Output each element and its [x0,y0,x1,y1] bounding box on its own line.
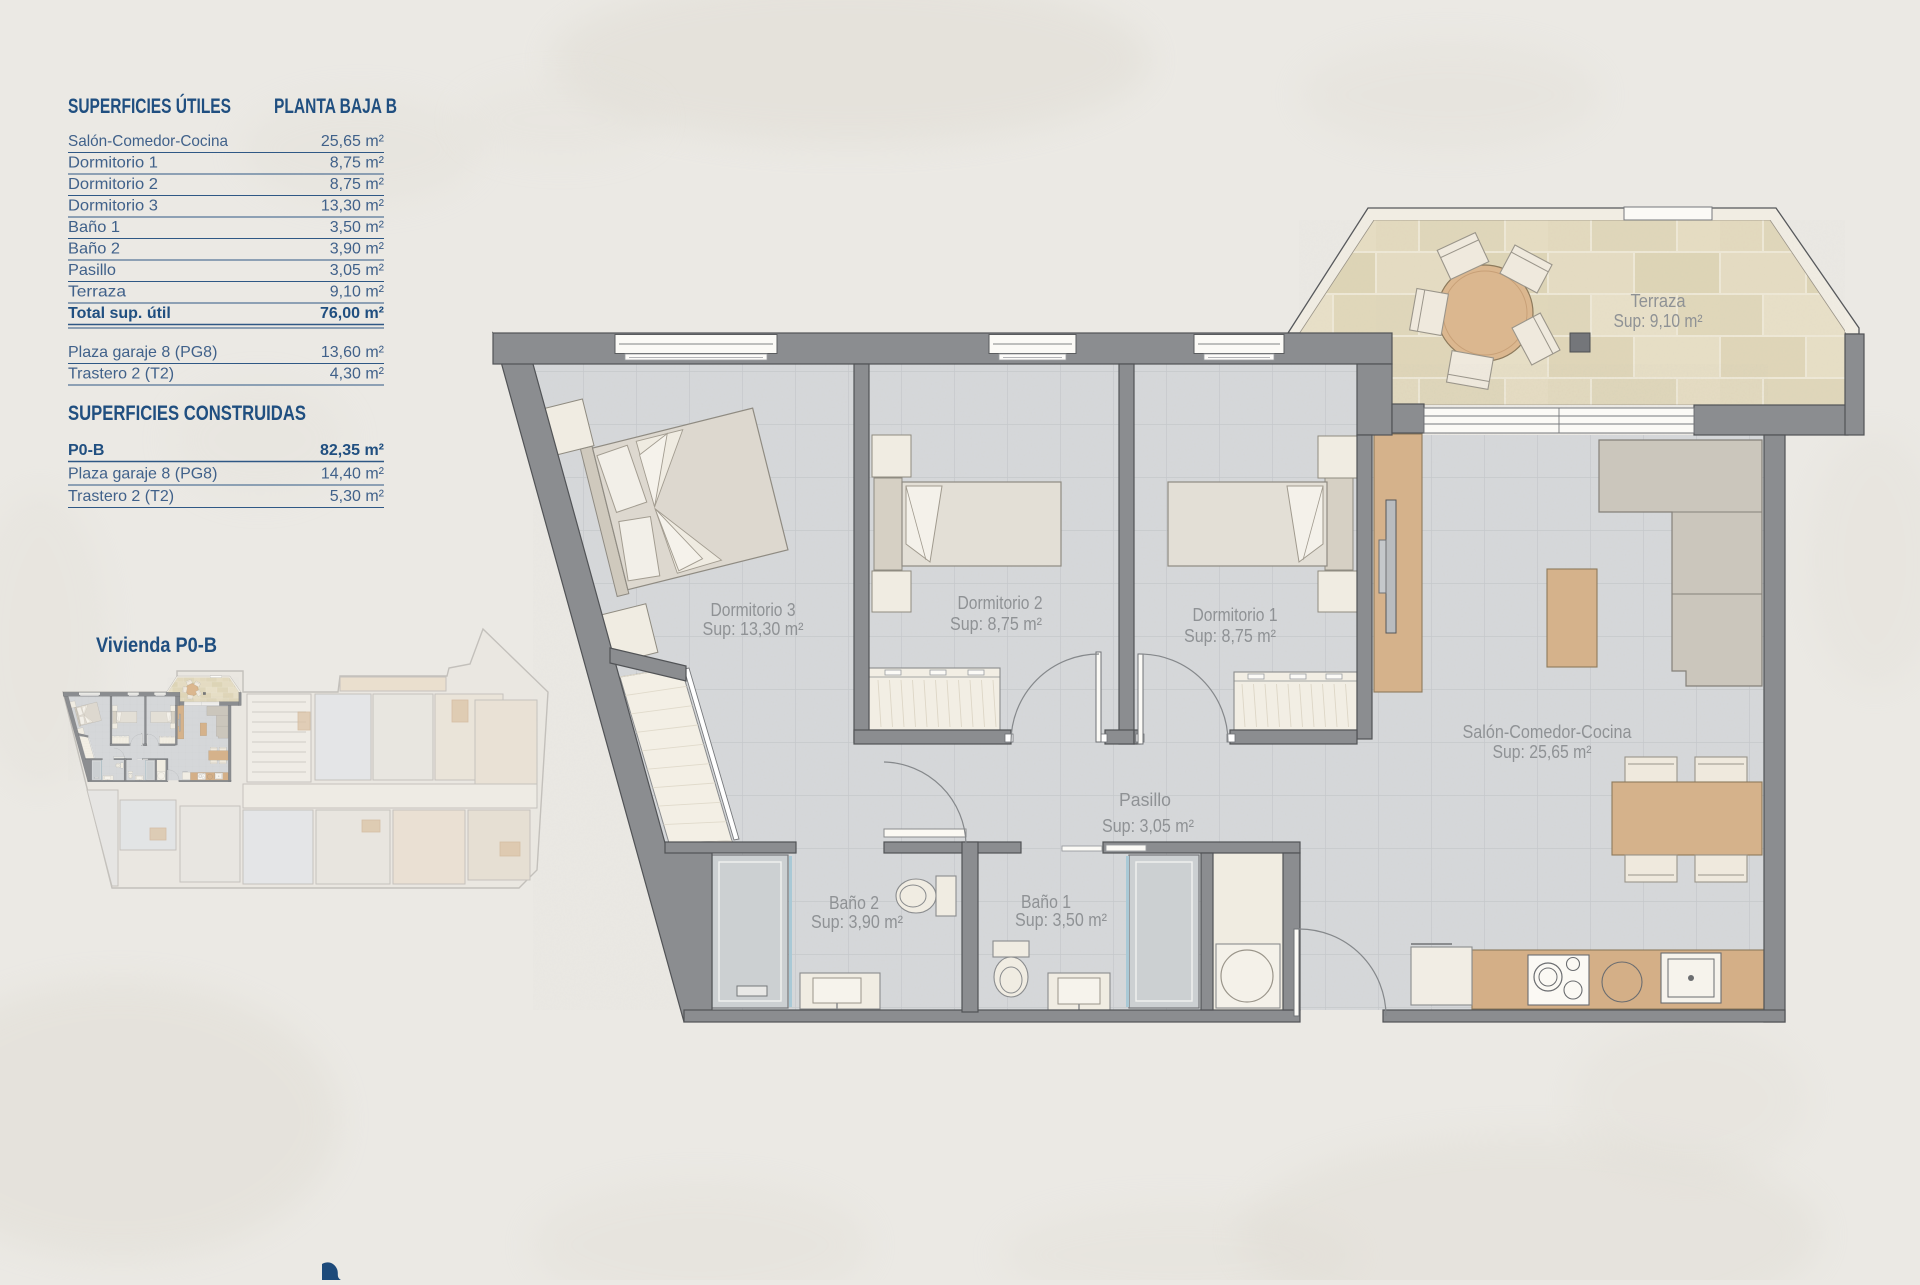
svg-text:82,35 m²: 82,35 m² [320,442,384,459]
svg-text:Sup: 13,30 m²: Sup: 13,30 m² [703,619,804,639]
svg-text:Plaza garaje 8 (PG8): Plaza garaje 8 (PG8) [68,466,217,483]
svg-text:8,75 m²: 8,75 m² [330,155,385,172]
svg-text:Dormitorio 2: Dormitorio 2 [68,176,158,193]
svg-text:Sup: 9,10 m²: Sup: 9,10 m² [1614,311,1703,331]
svg-text:Dormitorio 1: Dormitorio 1 [68,155,158,172]
svg-text:Plaza garaje 8 (PG8): Plaza garaje 8 (PG8) [68,344,217,361]
svg-text:Pasillo: Pasillo [68,262,116,279]
svg-text:Terraza: Terraza [68,284,126,301]
svg-text:Baño 2: Baño 2 [829,893,879,913]
svg-text:Sup: 3,50 m²: Sup: 3,50 m² [1015,910,1107,930]
svg-text:Dormitorio 3: Dormitorio 3 [68,198,158,215]
svg-text:Trastero 2 (T2): Trastero 2 (T2) [68,488,174,505]
svg-text:Sup: 3,90 m²: Sup: 3,90 m² [811,912,903,932]
svg-text:Baño 2: Baño 2 [68,241,120,258]
svg-text:Sup: 25,65 m²: Sup: 25,65 m² [1493,742,1592,762]
svg-text:SUPERFICIES CONSTRUIDAS: SUPERFICIES CONSTRUIDAS [68,402,306,425]
svg-text:13,30 m²: 13,30 m² [321,198,385,215]
svg-text:Total sup. útil: Total sup. útil [68,305,171,322]
svg-text:Pasillo: Pasillo [1119,790,1171,810]
svg-text:PLANTA BAJA B: PLANTA BAJA B [274,95,397,118]
svg-text:5,30 m²: 5,30 m² [330,488,385,505]
svg-text:Dormitorio 1: Dormitorio 1 [1193,605,1278,625]
svg-text:Terraza: Terraza [1631,291,1687,311]
svg-text:3,50 m²: 3,50 m² [330,219,385,236]
svg-text:4,30 m²: 4,30 m² [330,366,385,383]
svg-text:Salón-Comedor-Cocina: Salón-Comedor-Cocina [68,133,228,150]
svg-text:Dormitorio 2: Dormitorio 2 [958,593,1043,613]
svg-text:76,00 m²: 76,00 m² [320,305,384,322]
svg-text:25,65 m²: 25,65 m² [321,133,385,150]
svg-text:Sup: 8,75 m²: Sup: 8,75 m² [950,614,1042,634]
svg-text:Trastero 2 (T2): Trastero 2 (T2) [68,366,174,383]
svg-text:3,05 m²: 3,05 m² [330,262,385,279]
svg-text:Vivienda P0-B: Vivienda P0-B [96,634,217,657]
svg-text:Sup: 8,75 m²: Sup: 8,75 m² [1184,626,1276,646]
svg-text:Dormitorio 3: Dormitorio 3 [711,600,796,620]
svg-text:P0-B: P0-B [68,442,104,459]
svg-text:Sup: 3,05 m²: Sup: 3,05 m² [1102,816,1194,836]
svg-text:13,60 m²: 13,60 m² [321,344,385,361]
svg-text:8,75 m²: 8,75 m² [330,176,385,193]
svg-text:Baño 1: Baño 1 [68,219,120,236]
svg-text:Baño 1: Baño 1 [1021,892,1071,912]
svg-text:14,40 m²: 14,40 m² [321,466,385,483]
svg-text:Salón-Comedor-Cocina: Salón-Comedor-Cocina [1463,722,1633,742]
svg-text:9,10 m²: 9,10 m² [330,284,385,301]
svg-text:3,90 m²: 3,90 m² [330,241,385,258]
svg-text:SUPERFICIES ÚTILES: SUPERFICIES ÚTILES [68,94,231,118]
